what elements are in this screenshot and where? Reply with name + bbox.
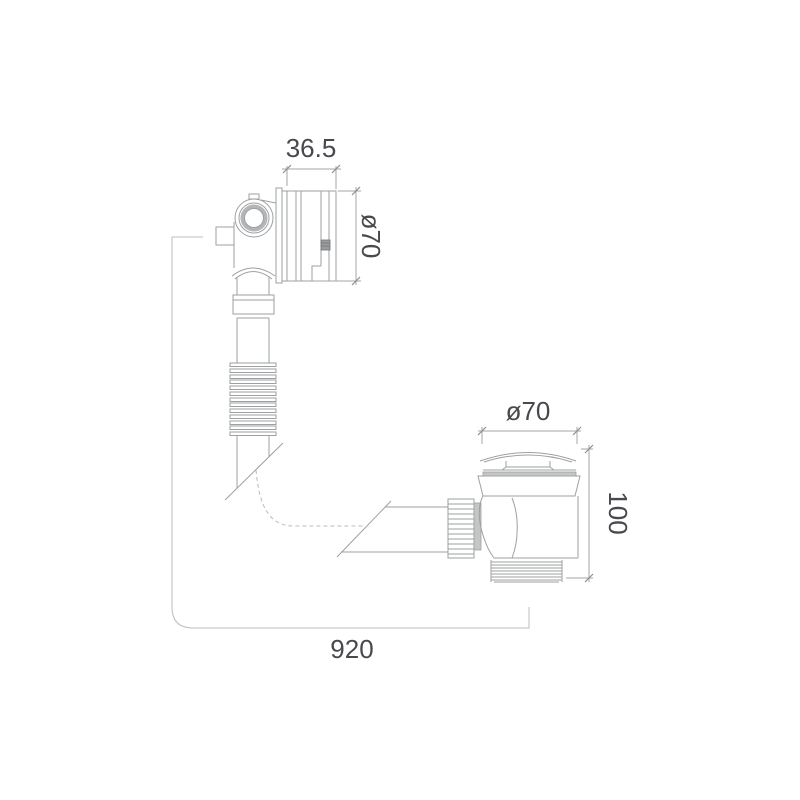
- hose-length-dimension-path: [172, 237, 529, 628]
- overflow-faceplate: [276, 188, 336, 283]
- dimension-overflow-depth: 36.5: [282, 133, 341, 189]
- dimension-waste-diameter: ø70: [478, 396, 581, 444]
- clamp-screw-hatch: [321, 240, 330, 250]
- nut-washer: [474, 503, 481, 550]
- overflow-fitting: [216, 194, 276, 279]
- waste-skirt: [478, 476, 580, 496]
- cap-stem: [502, 461, 554, 470]
- dimension-waste-height: 100: [566, 445, 633, 582]
- hose-collar-nut: [233, 295, 274, 314]
- waste-body: [478, 476, 580, 558]
- click-clack-waste: [448, 453, 580, 583]
- push-dome-cap: [480, 453, 576, 463]
- overflow-side-tab: [216, 227, 234, 245]
- threaded-tail: [491, 560, 562, 582]
- technical-drawing-canvas: 36.5 ø70 ø70 100 920: [0, 0, 800, 800]
- hose-length-label: 920: [330, 634, 373, 664]
- overflow-depth-label: 36.5: [286, 133, 337, 163]
- hose-centerline-dashed: [256, 470, 365, 526]
- horizontal-pipe: [337, 501, 448, 557]
- faceplate-flange: [276, 188, 282, 283]
- waste-diameter-label: ø70: [506, 396, 551, 426]
- corrugated-ribs: [230, 363, 276, 436]
- faceplate-disc: [282, 191, 287, 281]
- overflow-diameter-label: ø70: [356, 214, 386, 259]
- pipe-break-slash-left: [225, 443, 283, 500]
- pipe-break-slash-right: [337, 501, 391, 557]
- dimension-hose-length: 920: [330, 634, 373, 664]
- compression-nut: [448, 499, 474, 558]
- flexible-hose: [225, 277, 283, 500]
- waste-height-label: 100: [603, 491, 633, 534]
- hose-port-circles: [235, 194, 273, 237]
- drawing-svg: 36.5 ø70 ø70 100 920: [0, 0, 800, 800]
- waste-flange: [483, 470, 576, 476]
